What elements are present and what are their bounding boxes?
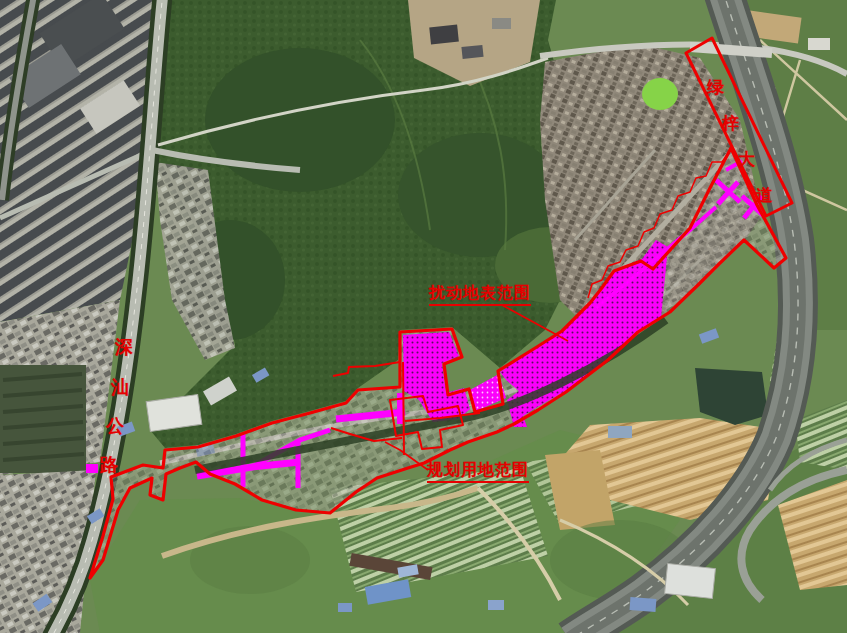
luzi-avenue-label-char: 道 [756, 184, 773, 207]
disturbed-surface-label: 扰动地表范围 [429, 284, 531, 306]
luzi-avenue-label-char: 绿 [707, 76, 724, 99]
shenshan-road-label-char: 路 [100, 453, 118, 477]
planning-area-label: 规划用地范围 [427, 461, 529, 483]
shenshan-road-label-char: 公 [106, 414, 124, 438]
satellite-planning-map: 扰动地表范围 规划用地范围 深 汕 公 路 绿 梓 大 道 [0, 0, 847, 633]
luzi-avenue-label-char: 梓 [722, 112, 739, 135]
shenshan-road-label-char: 汕 [111, 375, 129, 399]
luzi-avenue-label-char: 大 [738, 148, 755, 171]
shenshan-road-label-char: 深 [115, 335, 133, 359]
